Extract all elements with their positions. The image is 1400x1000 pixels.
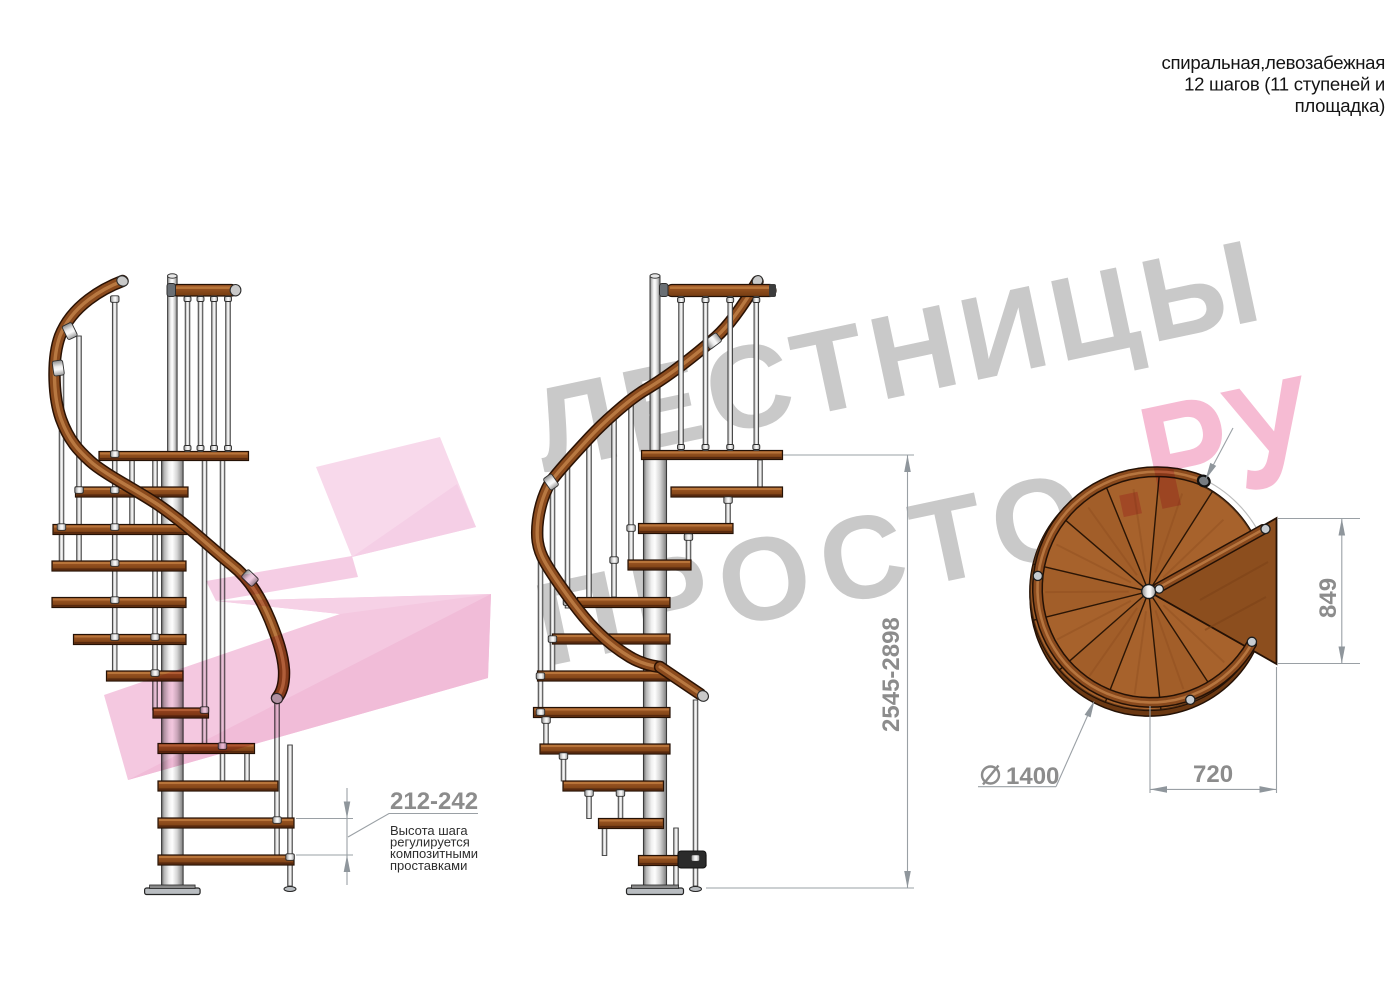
svg-text:2545-2898: 2545-2898 [878, 617, 905, 732]
svg-text:720: 720 [1193, 761, 1233, 788]
svg-text:1400: 1400 [1006, 763, 1059, 790]
svg-text:849: 849 [1315, 578, 1342, 618]
svg-text:212-242: 212-242 [390, 788, 478, 815]
svg-text:Высота шагарегулируетсякомпози: Высота шагарегулируетсякомпозитнымипрост… [390, 823, 478, 873]
